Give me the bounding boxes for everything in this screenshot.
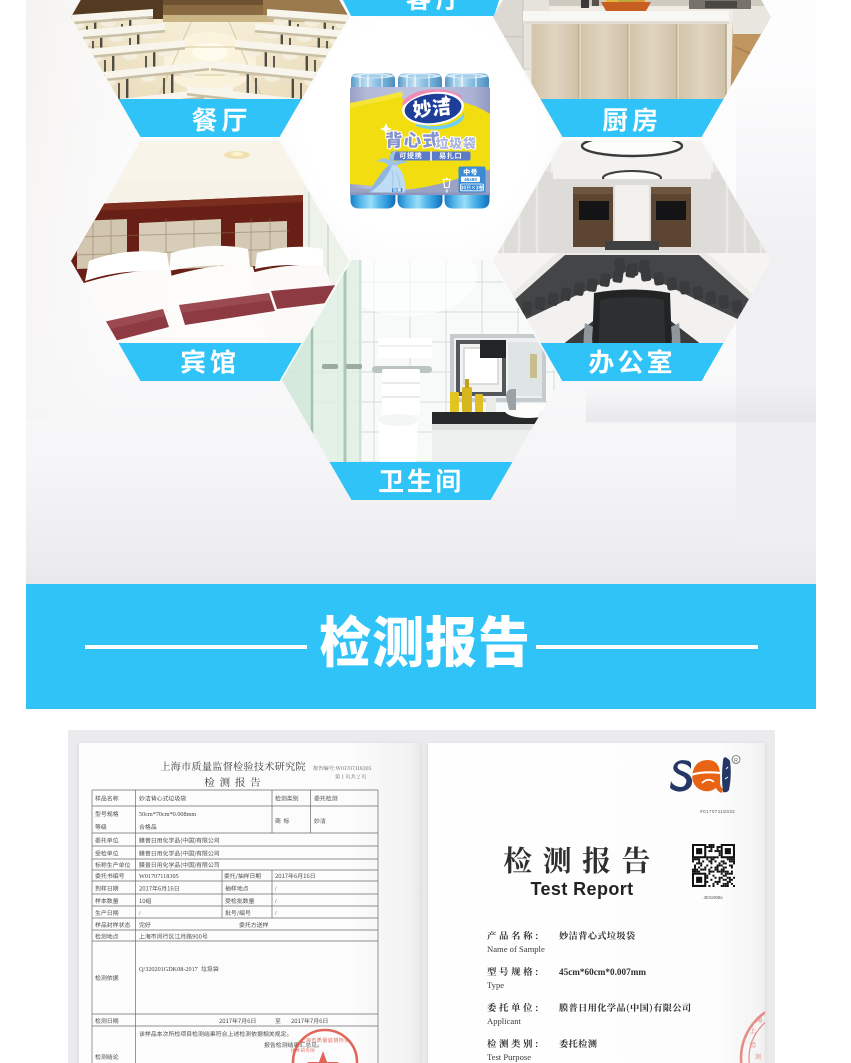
svg-text:JEXx908a: JEXx908a bbox=[703, 895, 723, 900]
svg-text:45cm*60cm*0.007mm: 45cm*60cm*0.007mm bbox=[559, 967, 646, 977]
svg-text:Name of Sample: Name of Sample bbox=[487, 944, 545, 954]
svg-text:/: / bbox=[275, 898, 277, 905]
svg-text:R: R bbox=[734, 758, 738, 764]
svg-text:/: / bbox=[275, 910, 277, 917]
svg-text:W01707118305: W01707118305 bbox=[139, 873, 179, 880]
svg-text:50cm*70cm*0.008mm: 50cm*70cm*0.008mm bbox=[139, 811, 196, 818]
svg-text:/: / bbox=[275, 886, 277, 893]
svg-text:45x60: 45x60 bbox=[464, 177, 477, 182]
svg-text:Test Purpose: Test Purpose bbox=[487, 1052, 531, 1062]
svg-text:Applicant: Applicant bbox=[487, 1016, 522, 1026]
svg-text:#01707118332: #01707118332 bbox=[700, 809, 735, 814]
svg-text:Test Report: Test Report bbox=[530, 879, 633, 899]
svg-text:Type: Type bbox=[487, 980, 504, 990]
svg-text:Q/320201GDK08-2017: Q/320201GDK08-2017 bbox=[139, 966, 198, 973]
svg-text:/: / bbox=[139, 910, 141, 917]
